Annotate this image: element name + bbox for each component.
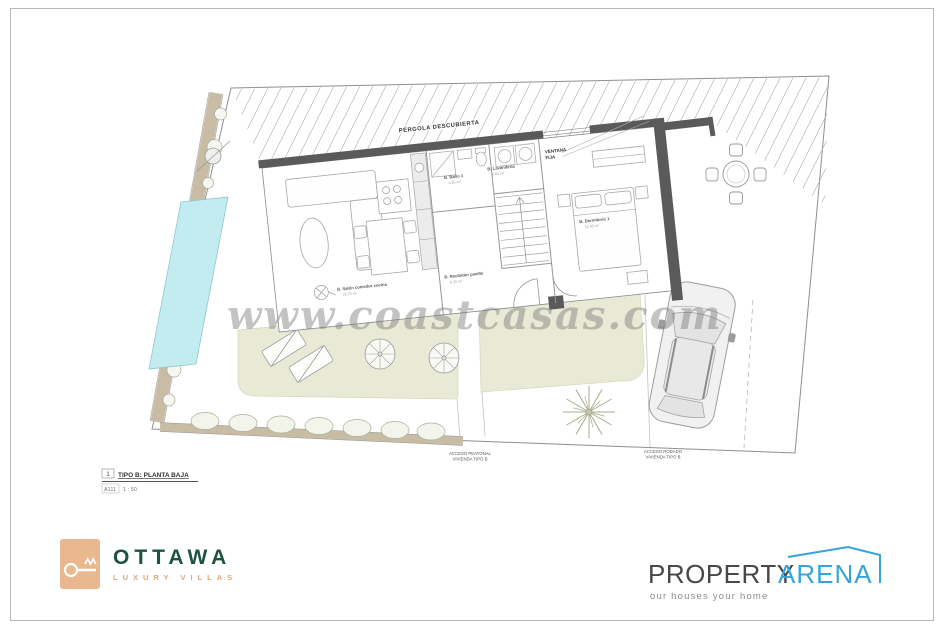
nightstand [635,186,648,199]
sheet-number: A111 [104,487,116,493]
kitchen-island [376,179,411,214]
ottawa-logo: OTTAWA LUXURY VILLAS [60,539,237,589]
access-label-vehicle: ACCESO RODADO [644,449,683,454]
property-arena-logo: PROPERTY ARENA our houses your home [648,545,908,612]
chair [407,250,420,263]
ottawa-tagline: LUXURY VILLAS [113,573,237,582]
ottawa-text: OTTAWA LUXURY VILLAS [113,547,237,582]
parasol-table [429,343,459,373]
pillow [575,194,602,209]
chair [403,220,416,233]
washbasin [457,149,472,159]
bench [627,270,648,284]
floor-plan-drawing: B. Baño 1 B. Lavandería B. Dormitorio 1 … [0,0,945,631]
arena-word: ARENA [778,559,873,589]
pillow [605,191,632,206]
ottawa-key-icon [60,539,100,589]
view-scale: 1 : 50 [123,487,137,493]
access-label-pedestrian: VIVIENDA TIPO B [452,457,487,462]
property-word: PROPERTY [648,559,795,589]
property-arena-tagline: our houses your home [650,591,769,602]
parasol-table [365,339,395,369]
access-label-vehicle: VIVIENDA TIPO B [645,455,680,460]
nightstand [557,194,570,207]
chair [357,255,370,268]
property-arena-mark: PROPERTY ARENA our houses your home [648,545,908,607]
dining-table [366,218,407,275]
ottawa-wordmark: OTTAWA [113,547,237,569]
view-title: TIPO B: PLANTA BAJA [118,472,189,479]
chair [354,225,367,238]
sink [414,163,424,173]
view-title-block: 1 TIPO B: PLANTA BAJA A111 1 : 50 [102,469,198,493]
view-number: 1 [106,472,110,478]
plan-sheet: B. Baño 1 B. Lavandería B. Dormitorio 1 … [0,0,945,631]
access-label-pedestrian: ACCESO PEATONAL [449,451,491,456]
